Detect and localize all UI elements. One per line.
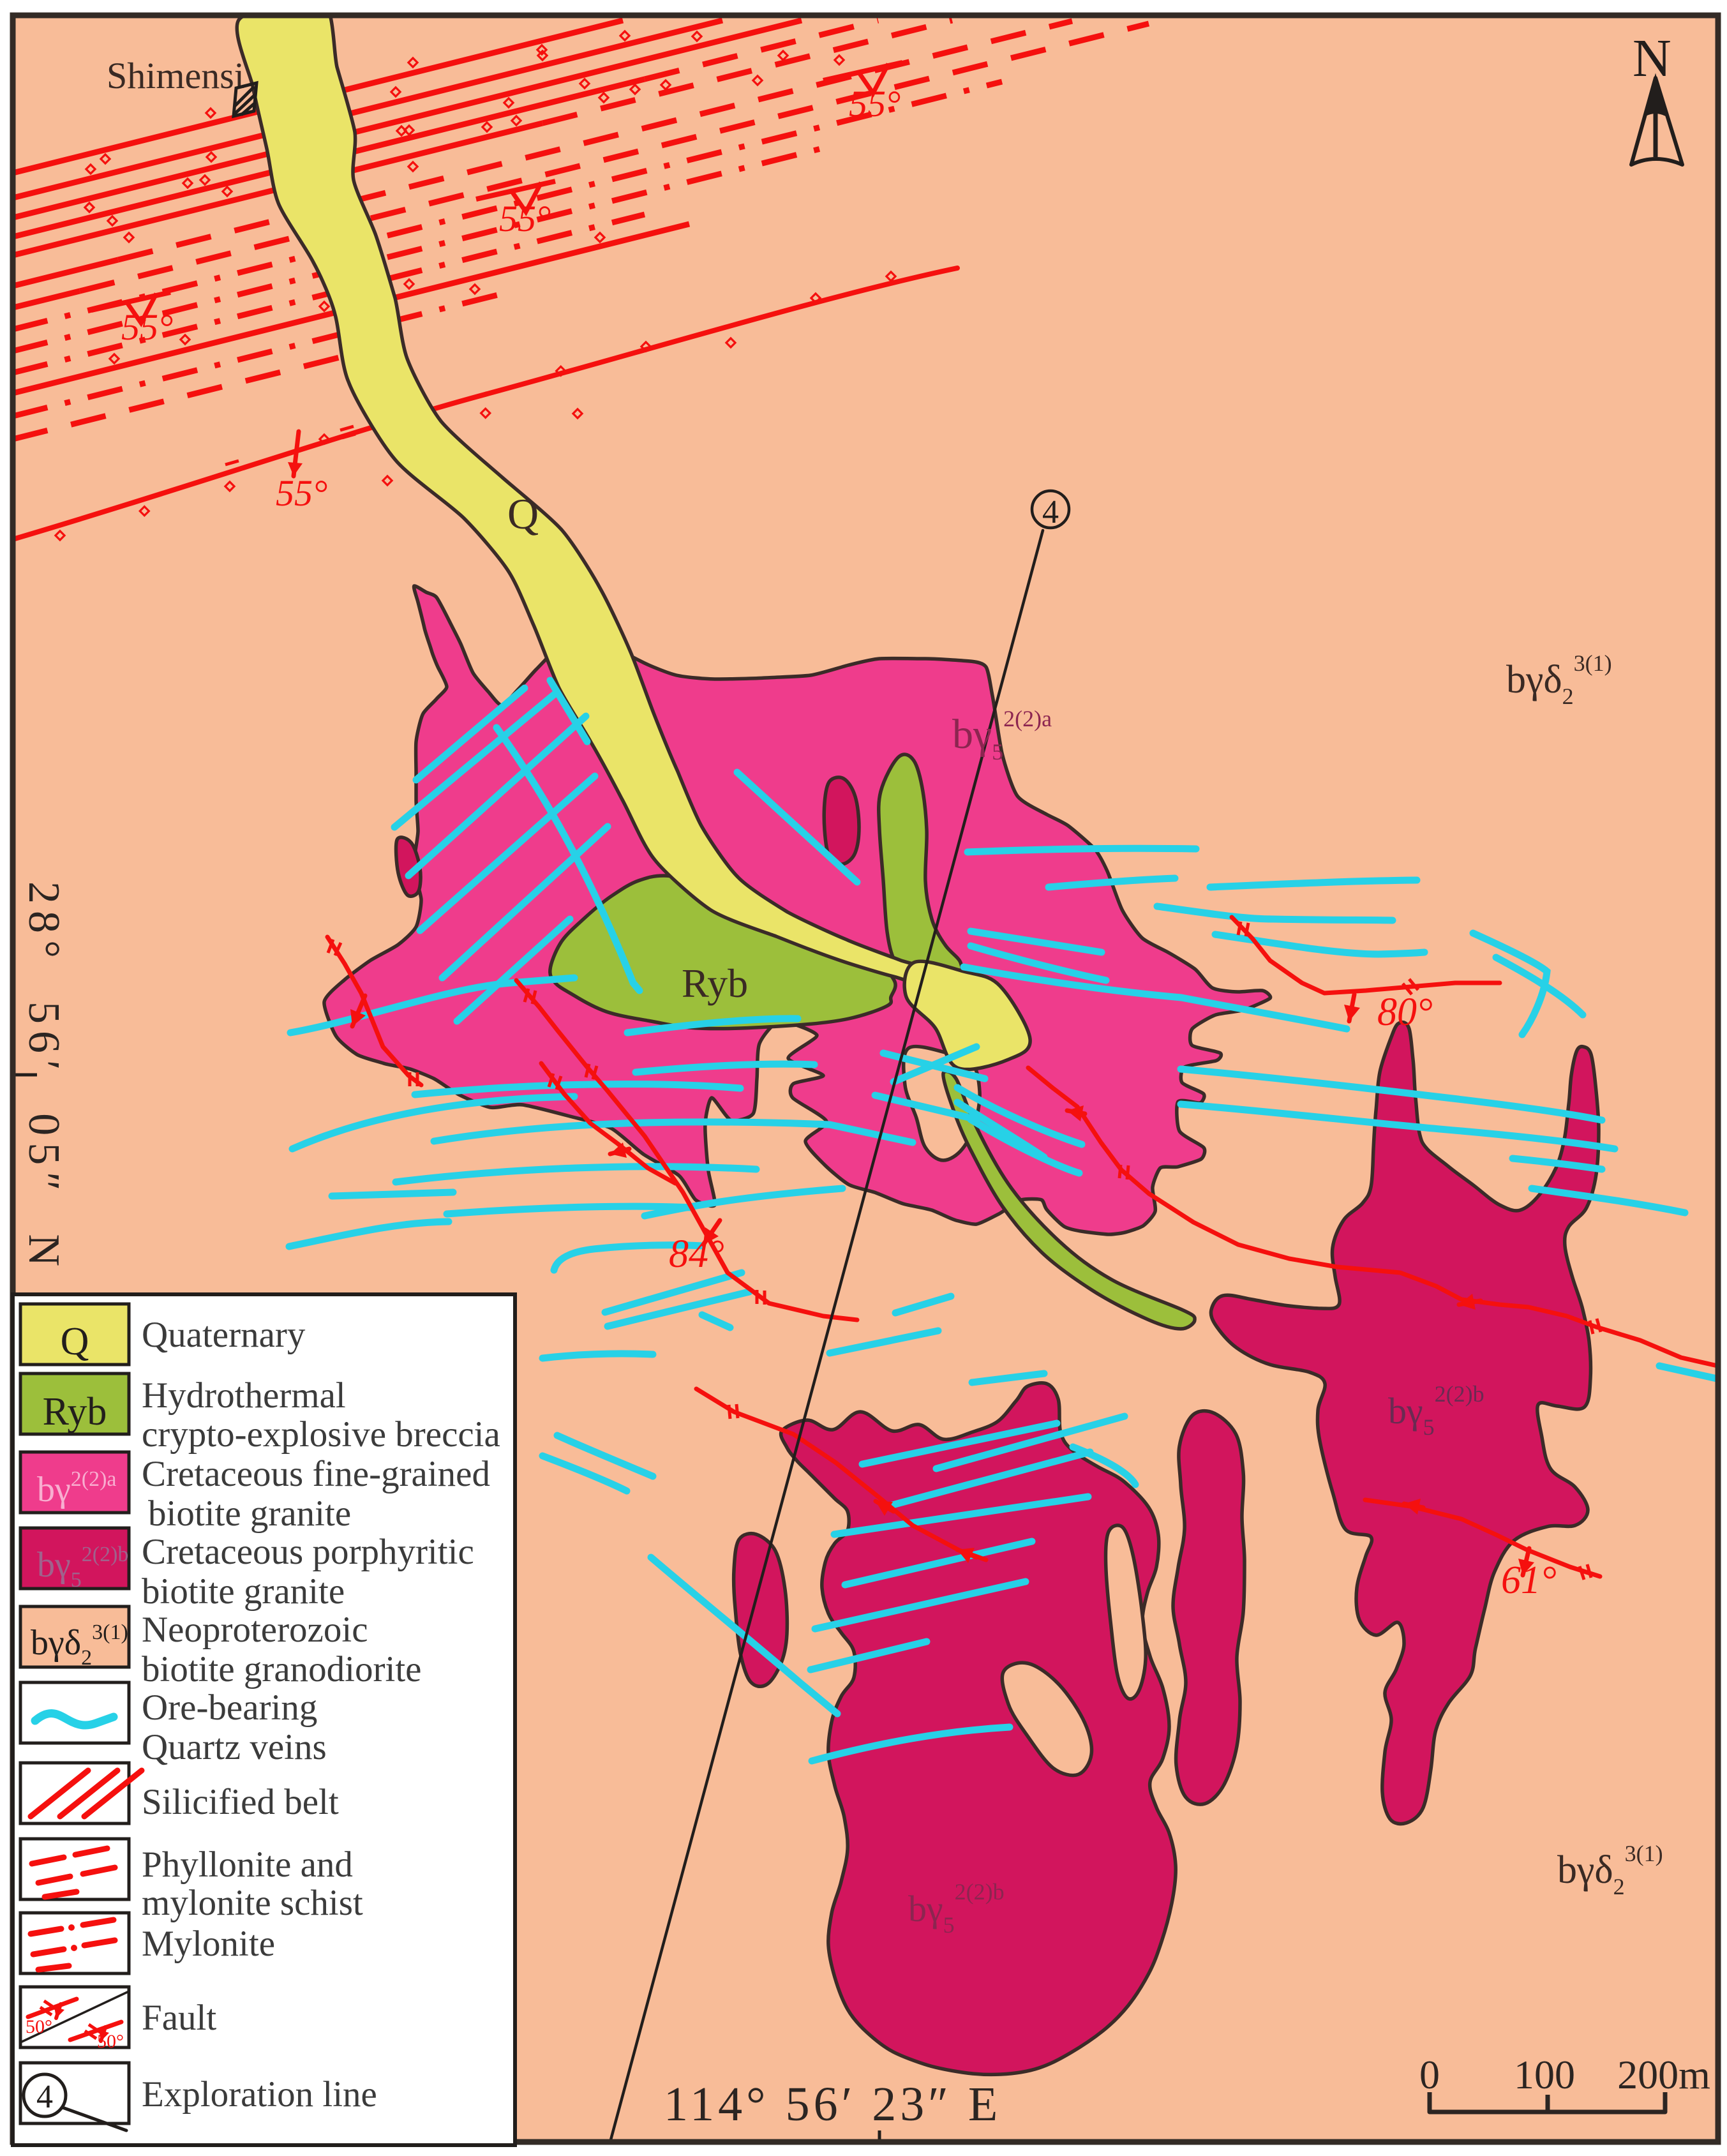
svg-text:biotite granite: biotite granite [148, 1493, 351, 1534]
svg-text:50°: 50° [26, 2016, 52, 2037]
svg-text:biotite granodiorite: biotite granodiorite [142, 1649, 421, 1689]
svg-text:Quaternary: Quaternary [142, 1315, 306, 1355]
svg-text:55°: 55° [276, 472, 327, 514]
svg-text:Exploration line: Exploration line [142, 2074, 377, 2115]
svg-text:Q: Q [507, 490, 539, 538]
svg-text:Shimensi: Shimensi [107, 55, 244, 96]
svg-text:100: 100 [1514, 2052, 1575, 2097]
svg-text:61°: 61° [1501, 1559, 1557, 1602]
svg-text:50°: 50° [97, 2031, 124, 2052]
svg-text:Quartz veins: Quartz veins [142, 1727, 327, 1767]
svg-text:Hydrothermal: Hydrothermal [142, 1375, 346, 1416]
svg-text:0: 0 [1419, 2052, 1440, 2097]
svg-text:Silicified belt: Silicified belt [142, 1782, 339, 1822]
svg-text:28° 56′ 05″ N: 28° 56′ 05″ N [19, 881, 68, 1273]
svg-text:biotite granite: biotite granite [142, 1571, 345, 1612]
svg-text:Fault: Fault [142, 1998, 216, 2038]
svg-text:Neoproterozoic: Neoproterozoic [142, 1610, 368, 1650]
svg-text:Phyllonite and: Phyllonite and [142, 1845, 353, 1885]
svg-text:4: 4 [1042, 494, 1059, 530]
svg-text:4: 4 [36, 2079, 53, 2115]
svg-text:Ryb: Ryb [43, 1390, 107, 1434]
svg-text:114° 56′ 23″ E: 114° 56′ 23″ E [664, 2077, 1001, 2131]
svg-text:N: N [1633, 29, 1671, 88]
svg-text:55°: 55° [849, 83, 901, 124]
svg-text:55°: 55° [121, 306, 173, 348]
svg-text:84°: 84° [669, 1232, 724, 1276]
svg-text:55°: 55° [499, 198, 551, 239]
svg-text:200m: 200m [1617, 2052, 1710, 2097]
svg-text:80°: 80° [1377, 991, 1433, 1034]
svg-text:Q: Q [61, 1320, 89, 1363]
svg-text:crypto-explosive breccia: crypto-explosive breccia [142, 1414, 500, 1455]
svg-text:Cretaceous porphyritic: Cretaceous porphyritic [142, 1532, 474, 1572]
svg-text:Mylonite: Mylonite [142, 1924, 275, 1964]
svg-text:Cretaceous fine-grained: Cretaceous fine-grained [142, 1454, 490, 1494]
svg-text:Ryb: Ryb [682, 961, 748, 1006]
svg-text:Ore-bearing: Ore-bearing [142, 1688, 317, 1728]
svg-text:mylonite schist: mylonite schist [142, 1883, 363, 1923]
